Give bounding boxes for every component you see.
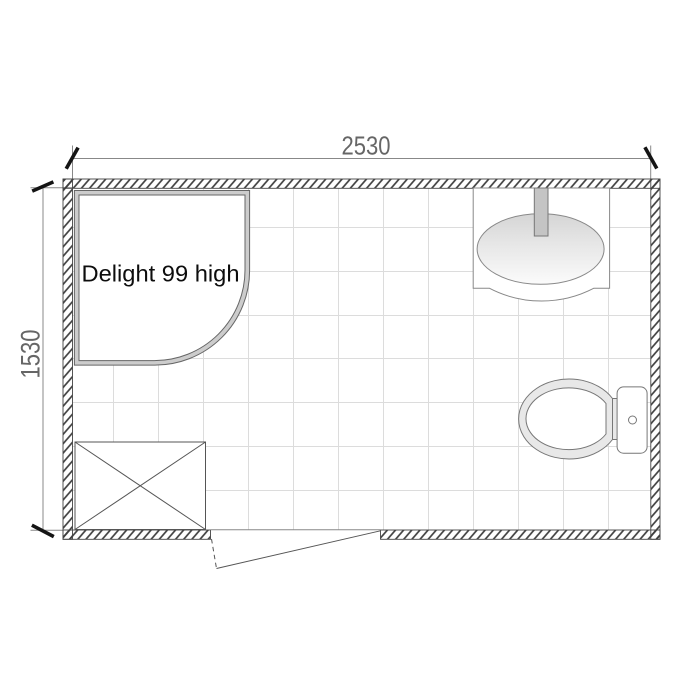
svg-text:2530: 2530 [342,131,391,161]
svg-text:1530: 1530 [16,330,46,379]
svg-text:Delight 99 high: Delight 99 high [82,261,240,287]
